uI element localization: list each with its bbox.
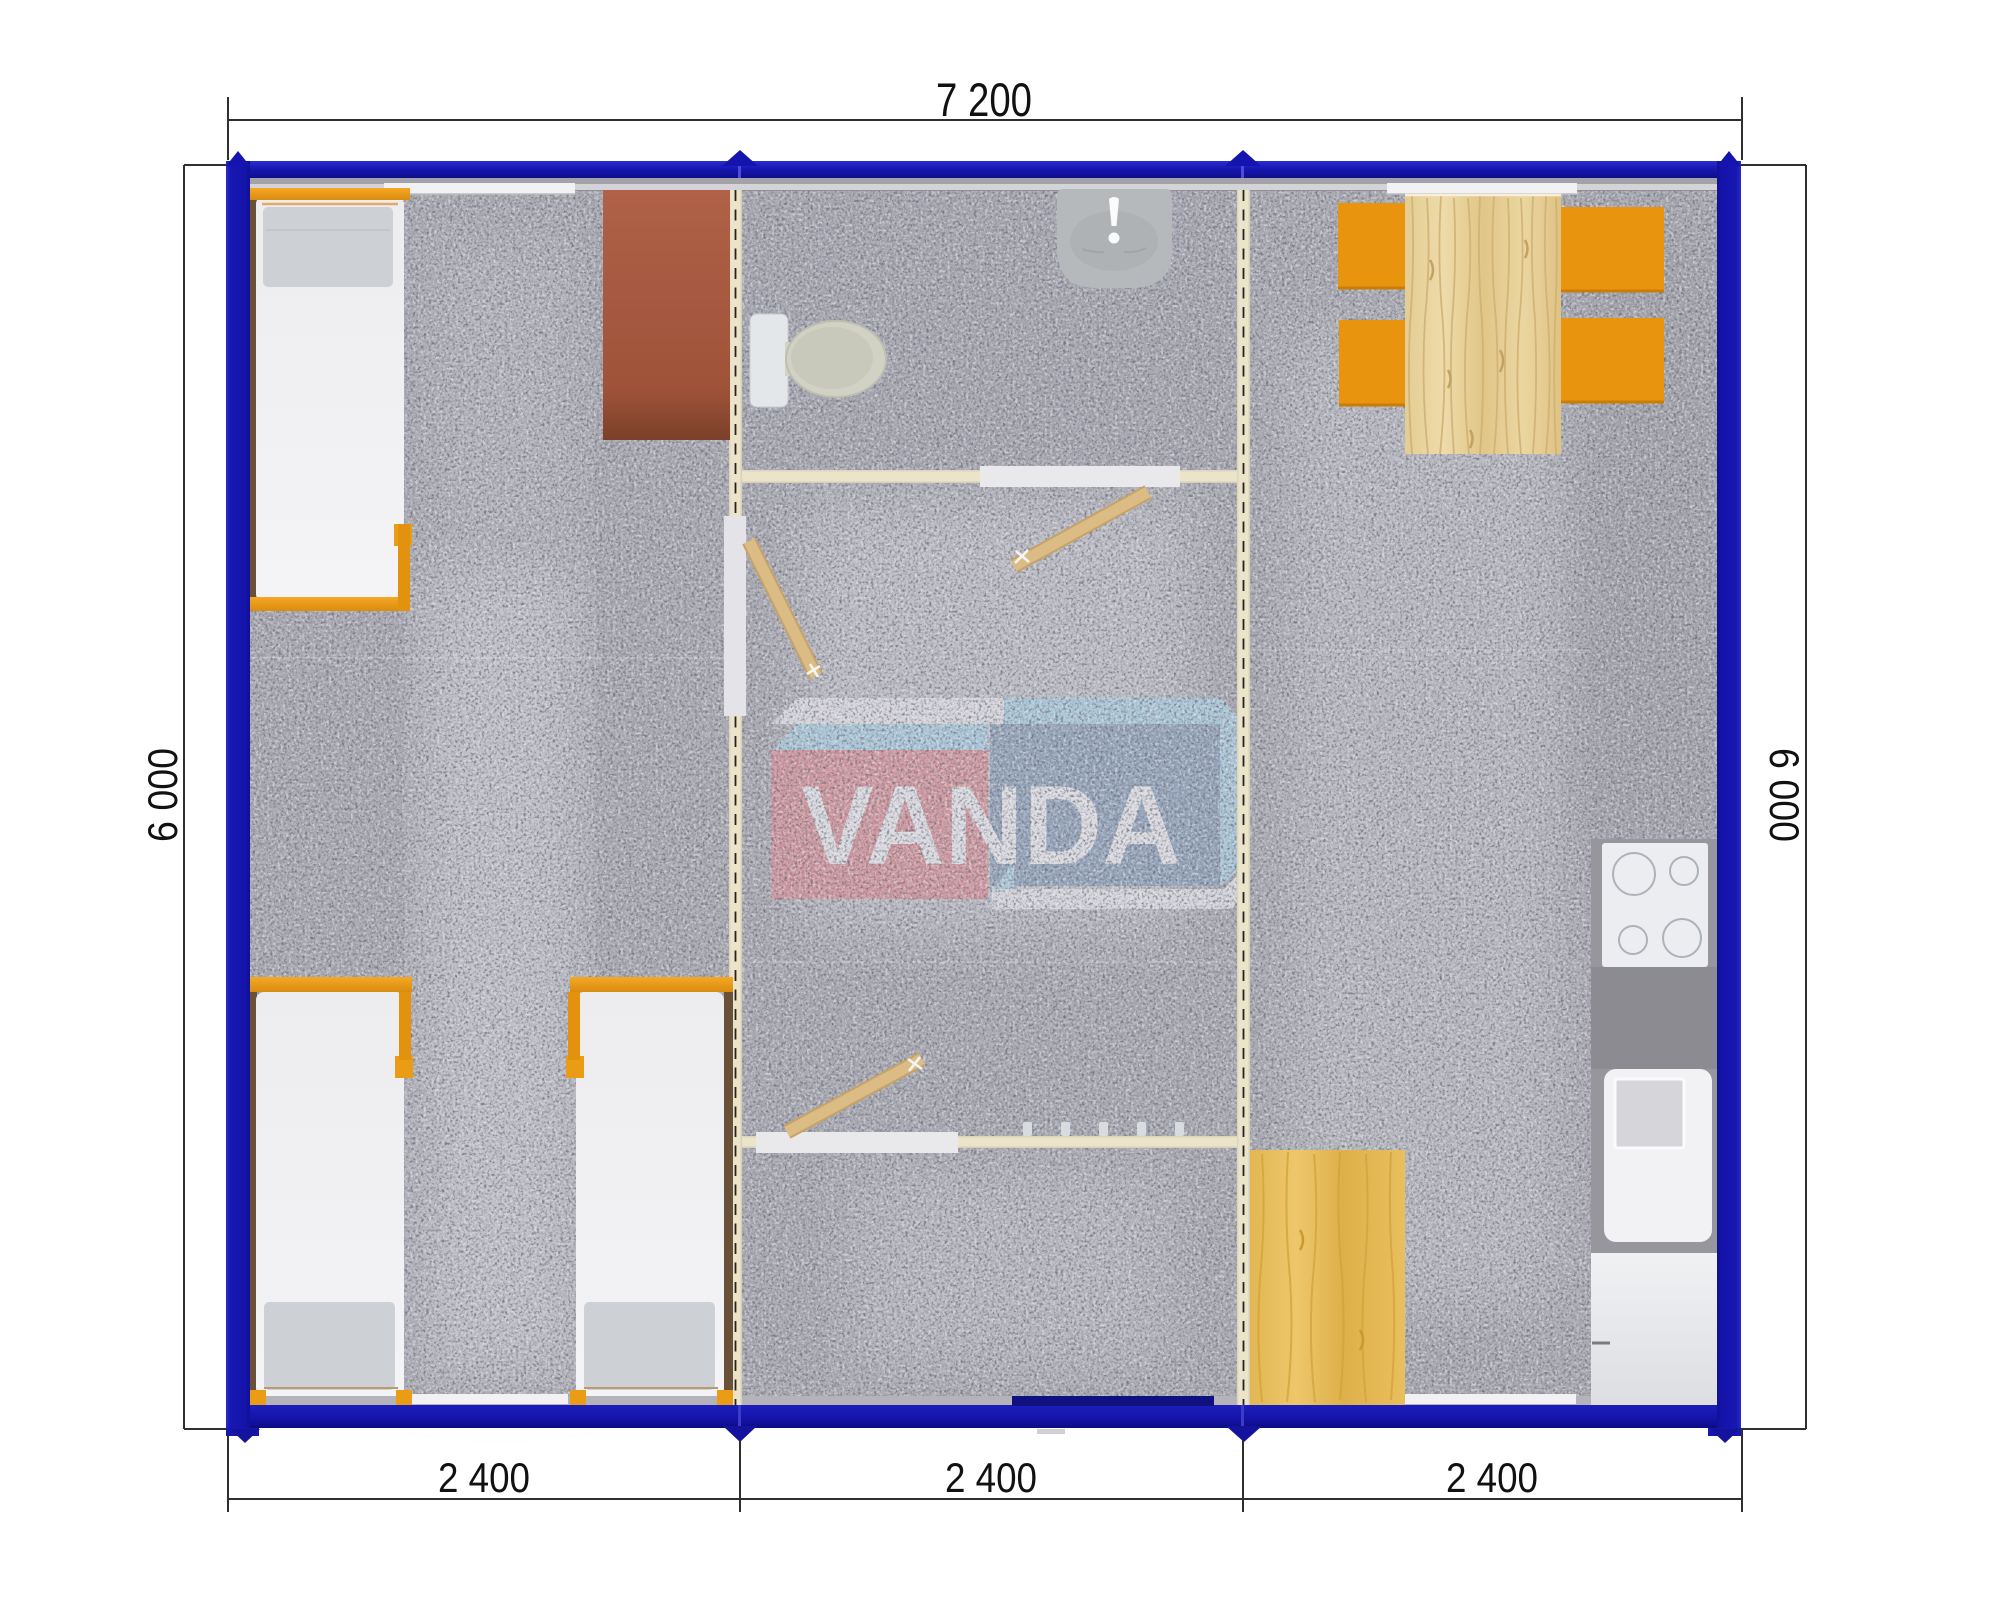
svg-text:6 000: 6 000	[1761, 748, 1808, 842]
svg-text:2 400: 2 400	[1446, 1454, 1538, 1501]
svg-text:7 200: 7 200	[936, 73, 1032, 126]
svg-text:6 000: 6 000	[139, 748, 186, 842]
svg-text:2 400: 2 400	[945, 1454, 1037, 1501]
svg-text:2 400: 2 400	[438, 1454, 530, 1501]
